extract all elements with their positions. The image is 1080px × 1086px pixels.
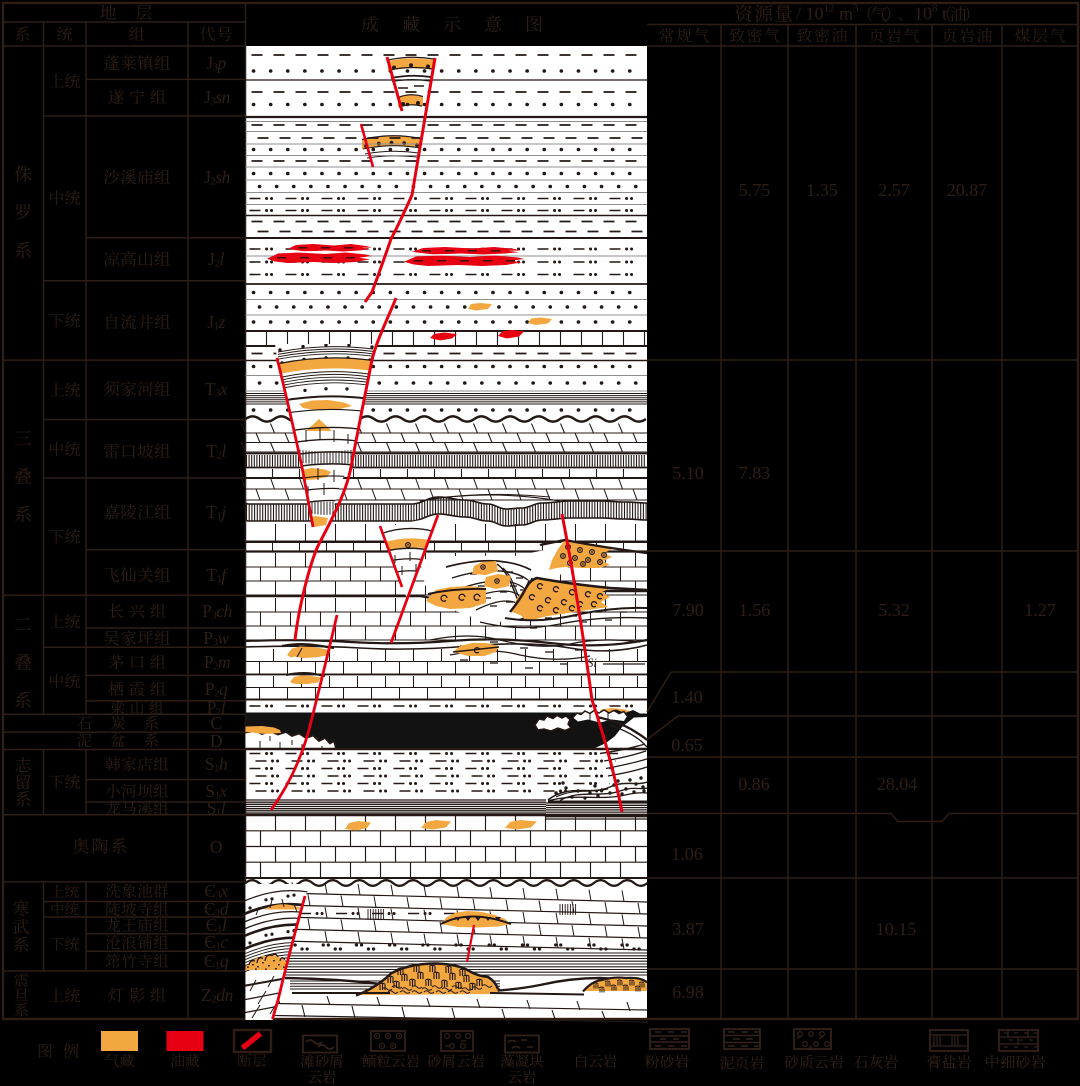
svg-text:2.57: 2.57: [878, 180, 910, 200]
svg-text:0.86: 0.86: [738, 774, 770, 794]
svg-text:J3sn: J3sn: [204, 87, 231, 108]
svg-text:T1j: T1j: [206, 502, 226, 523]
svg-text:5.32: 5.32: [878, 600, 910, 620]
svg-text:1.56: 1.56: [739, 600, 771, 620]
svg-text:5.75: 5.75: [739, 180, 771, 200]
svg-text:3.87: 3.87: [672, 919, 704, 939]
svg-text:108 t: 108 t: [914, 3, 947, 24]
svg-text:10.15: 10.15: [876, 919, 917, 939]
svg-text:0.65: 0.65: [671, 735, 703, 755]
svg-text:7.90: 7.90: [672, 600, 704, 620]
svg-text:28.04: 28.04: [877, 774, 918, 794]
svg-text:O: O: [210, 837, 222, 857]
svg-text:6.98: 6.98: [672, 982, 704, 1002]
svg-text:D: D: [210, 731, 222, 751]
svg-text:T2l: T2l: [206, 441, 226, 462]
svg-text:J2sh: J2sh: [204, 167, 231, 188]
svg-text:5.10: 5.10: [672, 463, 704, 483]
svg-text:7.83: 7.83: [739, 463, 771, 483]
svg-text:P3ch: P3ch: [202, 601, 233, 622]
svg-text:C: C: [210, 713, 221, 733]
svg-text:20.87: 20.87: [947, 180, 988, 200]
svg-text:1.35: 1.35: [806, 180, 838, 200]
svg-text:1.40: 1.40: [671, 687, 703, 707]
svg-text:1.27: 1.27: [1024, 600, 1056, 620]
svg-text:1.06: 1.06: [671, 844, 703, 864]
svg-text:Z2dn: Z2dn: [201, 985, 233, 1006]
